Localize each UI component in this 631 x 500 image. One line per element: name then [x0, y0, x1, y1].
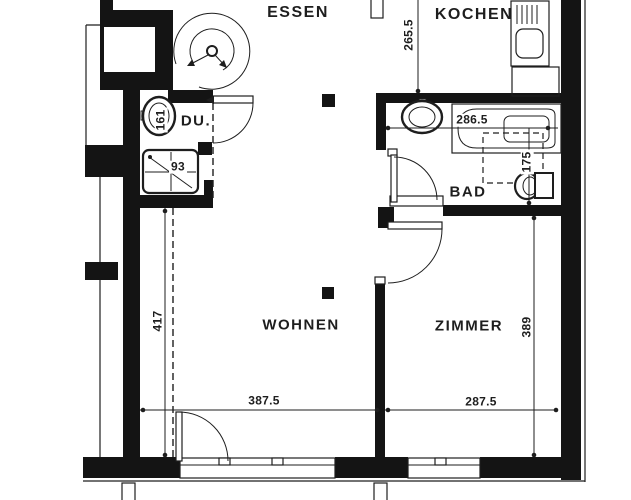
radiator-top: [371, 0, 383, 18]
balcony-door: [176, 412, 228, 461]
floorplan-drawing: [0, 0, 631, 500]
room-label-wohnen: WOHNEN: [262, 317, 339, 334]
wohnen-window: [180, 458, 335, 478]
dim-label-wohnen-width: 387.5: [248, 395, 280, 408]
dim-label-zimmer-height: 389: [521, 317, 534, 338]
dim-label-zimmer-width: 287.5: [465, 396, 497, 409]
balcony-post-right: [374, 483, 387, 500]
wall-segments: [83, 0, 581, 480]
room-label-bad: BAD: [450, 184, 487, 201]
column-top: [322, 94, 335, 107]
dimension-lines: [140, 0, 558, 458]
room-label-essen: ESSEN: [267, 4, 329, 22]
balcony-post-left: [122, 483, 135, 500]
room-label-kochen: KOCHEN: [435, 6, 513, 24]
dim-label-du-basin: 161: [155, 108, 168, 133]
bad-door: [388, 149, 443, 206]
kitchen-sink: [511, 1, 549, 66]
kitchen-counter: [512, 67, 559, 96]
spiral-stove: [174, 13, 250, 89]
dim-label-wohnen-height: 417: [152, 311, 165, 332]
room-label-zimmer: ZIMMER: [435, 318, 503, 335]
room-label-du: DU.: [181, 113, 211, 130]
dim-label-shower: 93: [169, 161, 187, 174]
floor-plan: ESSEN KOCHEN DU. BAD WOHNEN ZIMMER 265.5…: [0, 0, 631, 500]
dim-label-bath-depth: 175: [521, 150, 534, 175]
zimmer-door: [375, 222, 442, 284]
toilet: [515, 173, 553, 199]
dim-label-bathtub-width: 286.5: [454, 114, 490, 127]
dim-label-kochen-height: 265.5: [403, 19, 416, 51]
column-middle: [322, 287, 334, 299]
doors: [176, 96, 443, 461]
